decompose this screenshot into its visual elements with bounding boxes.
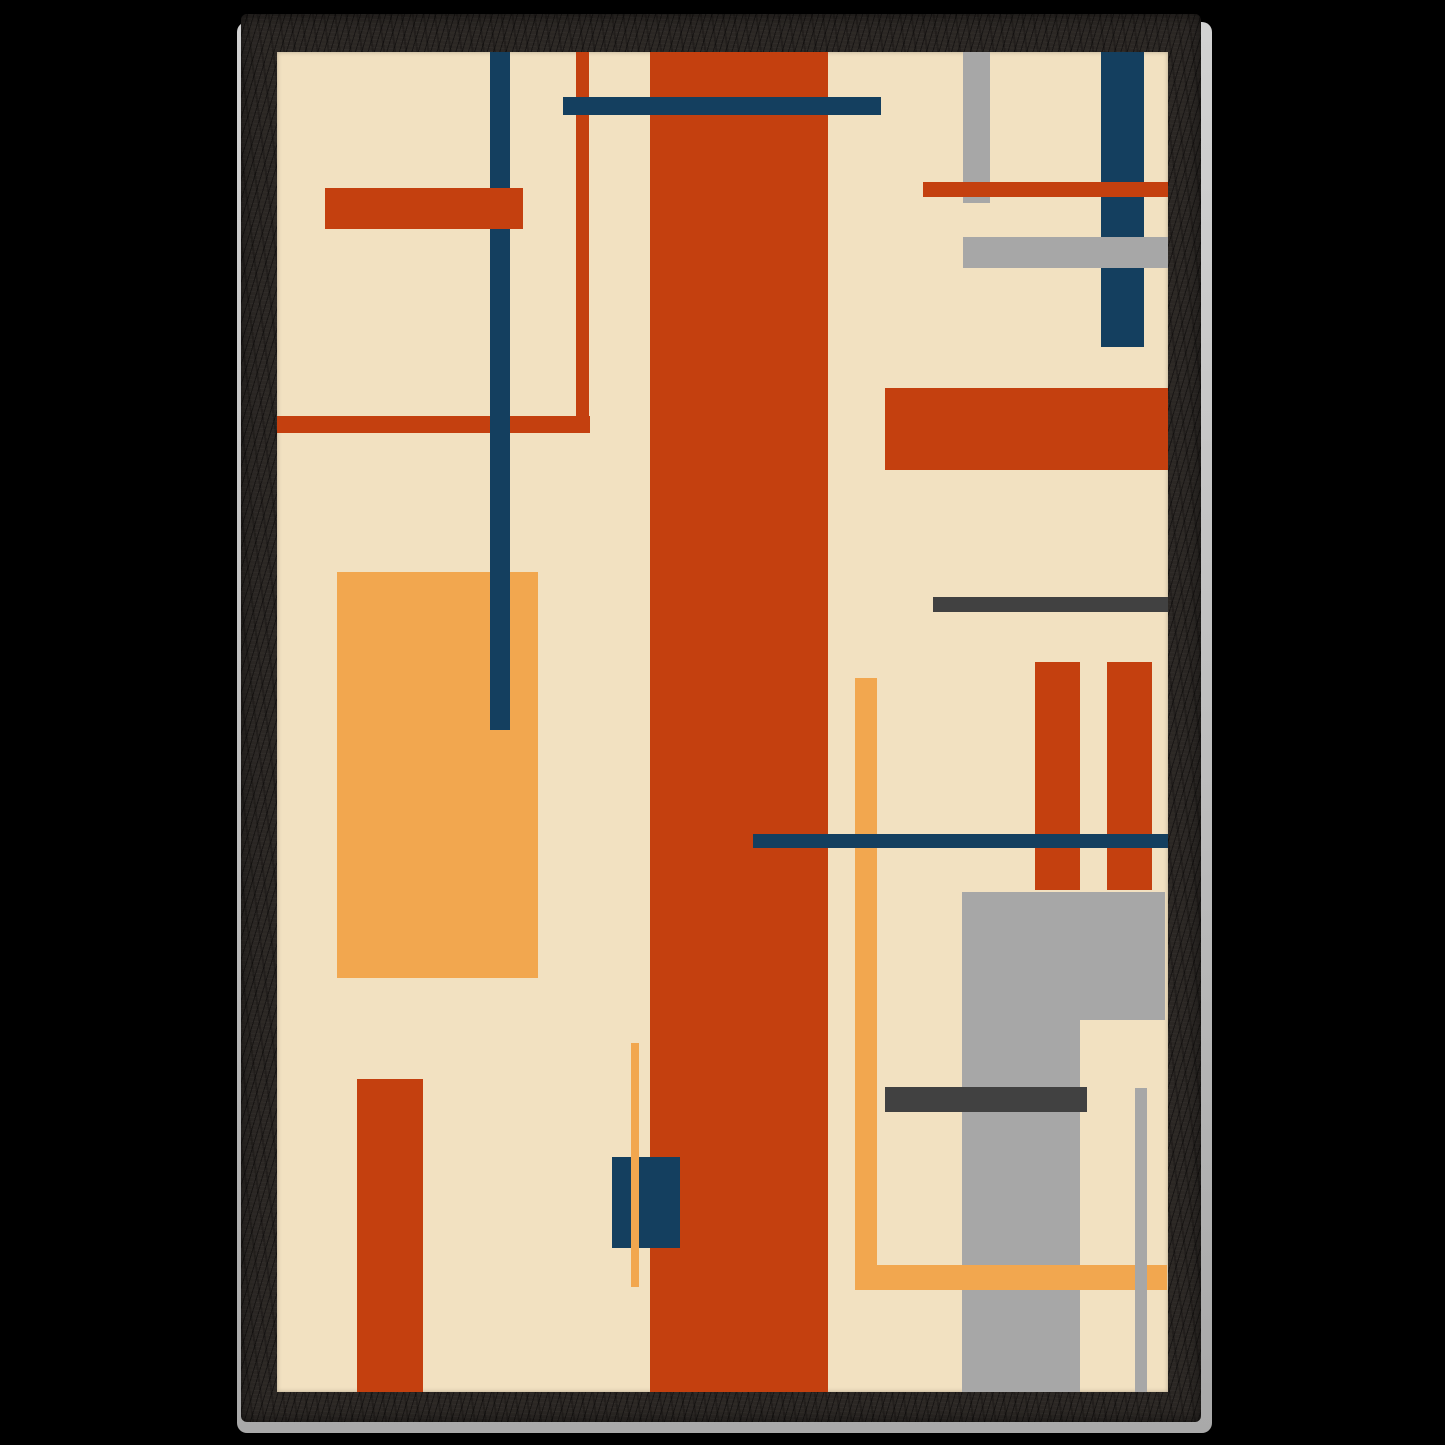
rust-rect-topleft	[325, 188, 523, 229]
rust-hline-topright	[923, 182, 1168, 197]
rust-bar-right-2	[1107, 662, 1152, 890]
art-canvas	[277, 52, 1168, 1392]
rust-bar-right-1	[1035, 662, 1080, 890]
gray-column-right	[962, 1020, 1080, 1392]
navy-hbar-top	[563, 97, 881, 115]
amber-thin-vline-center	[631, 1043, 639, 1287]
rust-hline-left	[277, 416, 590, 433]
gray-hbar-topright	[963, 237, 1168, 268]
darkgray-bar-bottomright	[885, 1087, 1087, 1112]
navy-vbar-topright	[1101, 52, 1144, 347]
navy-vline-left	[490, 52, 510, 730]
amber-vline-right	[855, 678, 877, 1290]
product-photo-background	[0, 0, 1445, 1445]
darkgray-line-right	[933, 597, 1168, 612]
amber-hbar-bottomright	[855, 1265, 1167, 1290]
rust-bar-bottomleft	[357, 1079, 423, 1392]
gray-rect-right-big	[962, 892, 1165, 1020]
rust-rect-right	[885, 388, 1168, 470]
gray-vbar-topright	[963, 52, 990, 203]
framed-poster	[241, 14, 1201, 1422]
gray-thin-vline-bottomright	[1135, 1088, 1147, 1392]
navy-square-bottom	[612, 1157, 680, 1248]
navy-hline-right	[753, 834, 1168, 848]
